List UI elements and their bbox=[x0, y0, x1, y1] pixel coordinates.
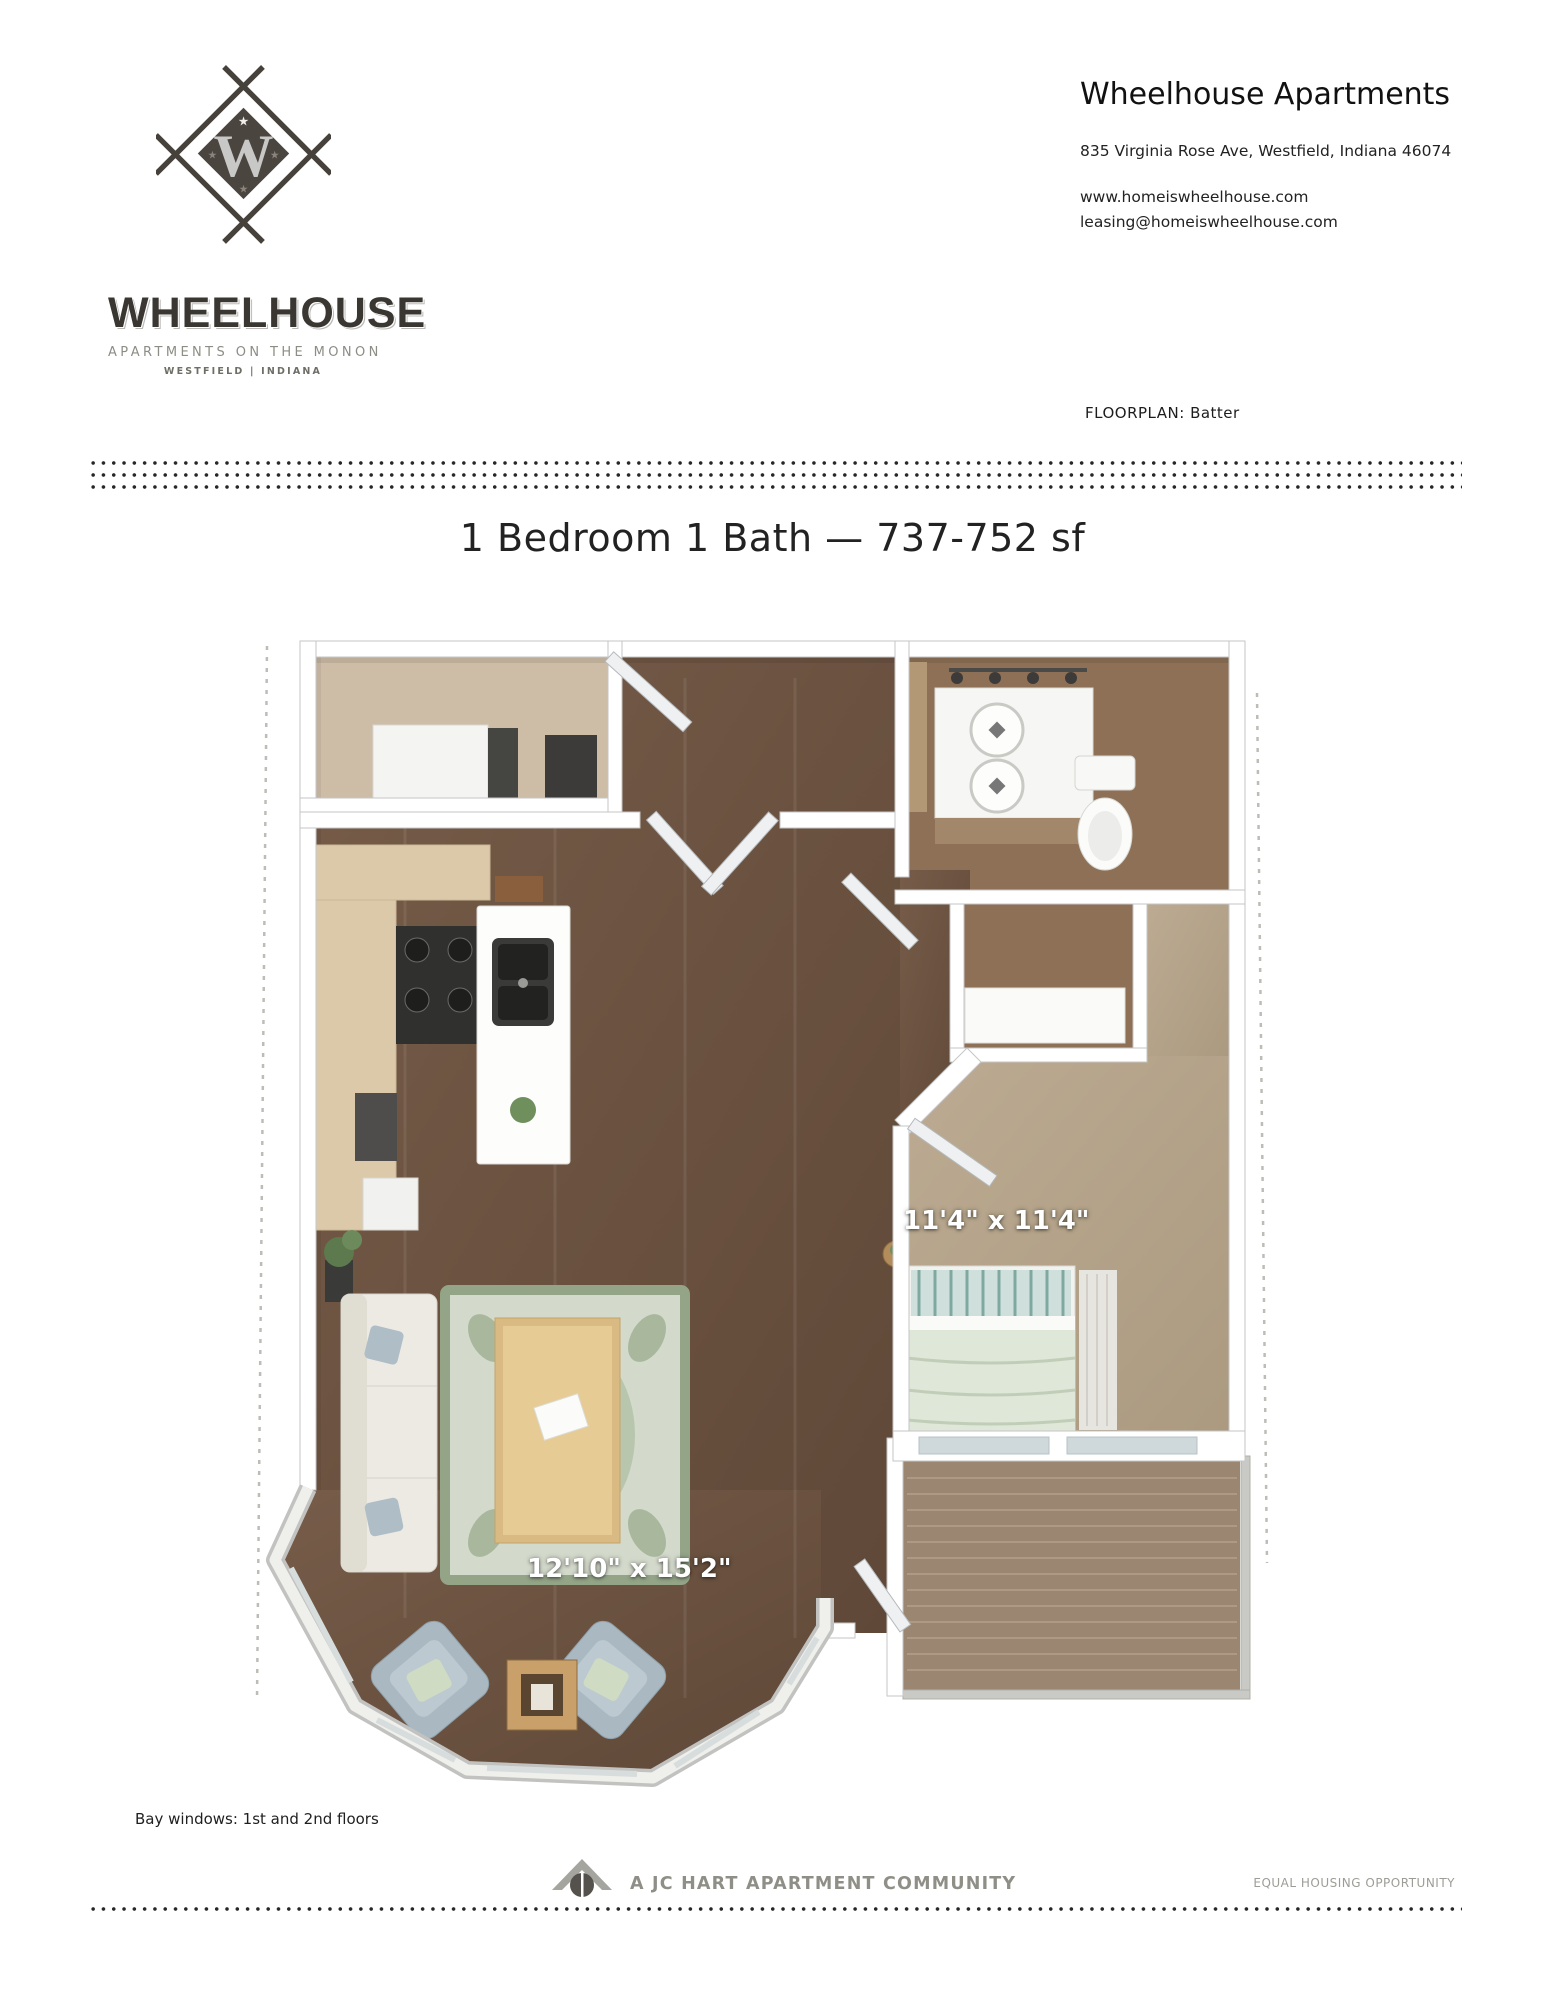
bay-window-note: Bay windows: 1st and 2nd floors bbox=[135, 1810, 379, 1828]
svg-text:★: ★ bbox=[207, 148, 217, 161]
floorplan-name-line: FLOORPLAN: Batter bbox=[1085, 404, 1240, 422]
bedroom-dimension-label: 11'4" x 11'4" bbox=[903, 1206, 1089, 1236]
plant-leaf bbox=[342, 1230, 362, 1250]
kitchen-island bbox=[477, 876, 570, 1164]
website-link[interactable]: www.homeiswheelhouse.com bbox=[1080, 188, 1490, 206]
island-sink bbox=[492, 938, 554, 1026]
logo-location: WESTFIELD | INDIANA bbox=[108, 366, 378, 377]
sofa bbox=[341, 1294, 437, 1572]
bedroom-carpet-nook bbox=[1147, 904, 1229, 1056]
dotted-separator bbox=[88, 455, 1462, 490]
svg-text:★: ★ bbox=[269, 148, 279, 161]
email-link[interactable]: leasing@homeiswheelhouse.com bbox=[1080, 213, 1490, 231]
floorplan-label: FLOORPLAN: bbox=[1085, 404, 1185, 422]
coffee-table bbox=[495, 1318, 620, 1543]
property-title: Wheelhouse Apartments bbox=[1080, 78, 1490, 113]
community-credit: A JC HART APARTMENT COMMUNITY bbox=[630, 1874, 1016, 1894]
page-title: 1 Bedroom 1 Bath — 737-752 sf bbox=[0, 516, 1545, 560]
contact-block: Wheelhouse Apartments 835 Virginia Rose … bbox=[1080, 78, 1490, 231]
jc-hart-house-icon bbox=[550, 1854, 614, 1904]
wall-shadow bbox=[300, 657, 1245, 663]
bed bbox=[883, 1241, 1117, 1438]
right-dashed-guide bbox=[1257, 693, 1267, 1563]
wheelhouse-diamond-logo: W ★ ★ ★ ★ bbox=[156, 52, 331, 287]
svg-text:★: ★ bbox=[238, 182, 248, 195]
logo-monogram: W bbox=[213, 123, 273, 190]
logo-wordmark: WHEELHOUSE bbox=[108, 289, 378, 338]
floorplan-name: Batter bbox=[1190, 404, 1240, 422]
balcony-railing bbox=[1241, 1456, 1250, 1699]
side-table bbox=[507, 1660, 577, 1730]
svg-text:★: ★ bbox=[237, 113, 248, 128]
balcony-railing-bottom bbox=[903, 1690, 1250, 1699]
closet-shelf bbox=[965, 988, 1125, 1043]
floorplan-flyer-page: W ★ ★ ★ ★ WHEELHOUSE APARTMENTS ON THE M… bbox=[0, 0, 1545, 2000]
bedroom-window-wall bbox=[893, 1431, 1245, 1461]
closet-area bbox=[957, 904, 1133, 1048]
balcony-area bbox=[903, 1456, 1250, 1699]
kitchen-appliance bbox=[355, 1093, 397, 1161]
vanity bbox=[935, 670, 1093, 844]
wheelhouse-logo-block: W ★ ★ ★ ★ WHEELHOUSE APARTMENTS ON THE M… bbox=[108, 52, 378, 377]
cutting-board bbox=[495, 876, 543, 902]
floorplan-render: 11'4" x 11'4" 12'10" x 15'2" bbox=[255, 638, 1270, 1788]
floorplan-svg bbox=[255, 638, 1270, 1788]
kitchen-cart bbox=[363, 1178, 418, 1230]
living-dimension-label: 12'10" x 15'2" bbox=[527, 1554, 732, 1584]
logo-tagline: APARTMENTS ON THE MONON bbox=[108, 345, 378, 360]
equal-housing-text: EQUAL HOUSING OPPORTUNITY bbox=[1253, 1876, 1455, 1890]
toilet bbox=[1075, 756, 1135, 870]
left-dashed-guide bbox=[257, 646, 267, 1700]
linen-cabinet bbox=[909, 662, 927, 812]
bottom-dotted-separator bbox=[88, 1901, 1462, 1913]
island-plant bbox=[510, 1097, 536, 1123]
property-address: 835 Virginia Rose Ave, Westfield, Indian… bbox=[1080, 142, 1490, 160]
